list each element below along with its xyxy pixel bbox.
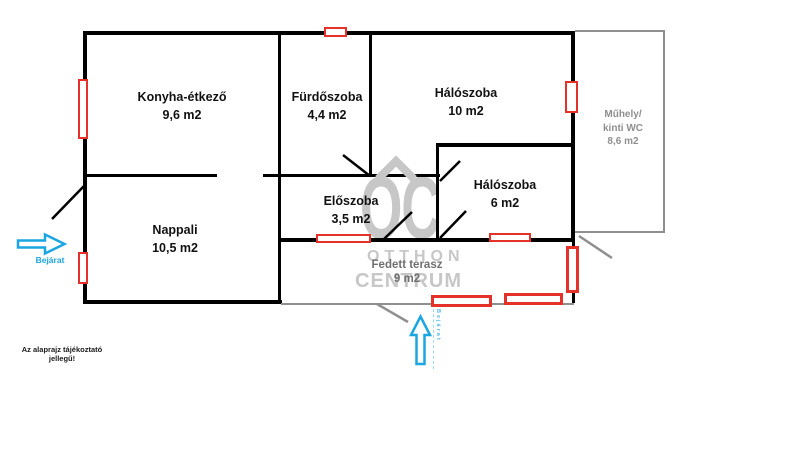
room-label-eloszoba: Előszoba 3,5 m2 bbox=[276, 192, 426, 228]
door-swing-icon bbox=[440, 211, 466, 238]
watermark-roof-icon bbox=[378, 161, 414, 179]
entrance-label-side: Bejárat bbox=[20, 255, 80, 265]
entrance-arrow-icon bbox=[411, 317, 430, 365]
room-label-furdoszoba: Fürdőszoba 4,4 m2 bbox=[252, 88, 402, 124]
room-label-nappali: Nappali 10,5 m2 bbox=[100, 221, 250, 257]
room-label-muhely: Műhely/ kinti WC 8,6 m2 bbox=[575, 108, 671, 149]
room-label-haloszoba-nagy: Hálószoba 10 m2 bbox=[391, 84, 541, 120]
door-swing-icon bbox=[377, 304, 408, 322]
entrance-arrow-icon bbox=[18, 235, 65, 254]
door-swing-icon bbox=[52, 186, 84, 219]
door-swing-icon bbox=[579, 236, 612, 258]
entrance-label-bottom: Bejárat bbox=[433, 309, 441, 369]
door-swing-icon bbox=[343, 155, 370, 176]
disclaimer-note: Az alaprajz tájékoztató jellegű! bbox=[12, 345, 112, 363]
floor-plan: OC OTTHON CENTRUM Konyha-étkező 9, bbox=[0, 0, 800, 454]
room-label-konyha: Konyha-étkező 9,6 m2 bbox=[107, 88, 257, 124]
room-label-haloszoba-kis: Hálószoba 6 m2 bbox=[430, 176, 580, 212]
room-label-terasz: Fedett terasz 9 m2 bbox=[347, 258, 467, 286]
